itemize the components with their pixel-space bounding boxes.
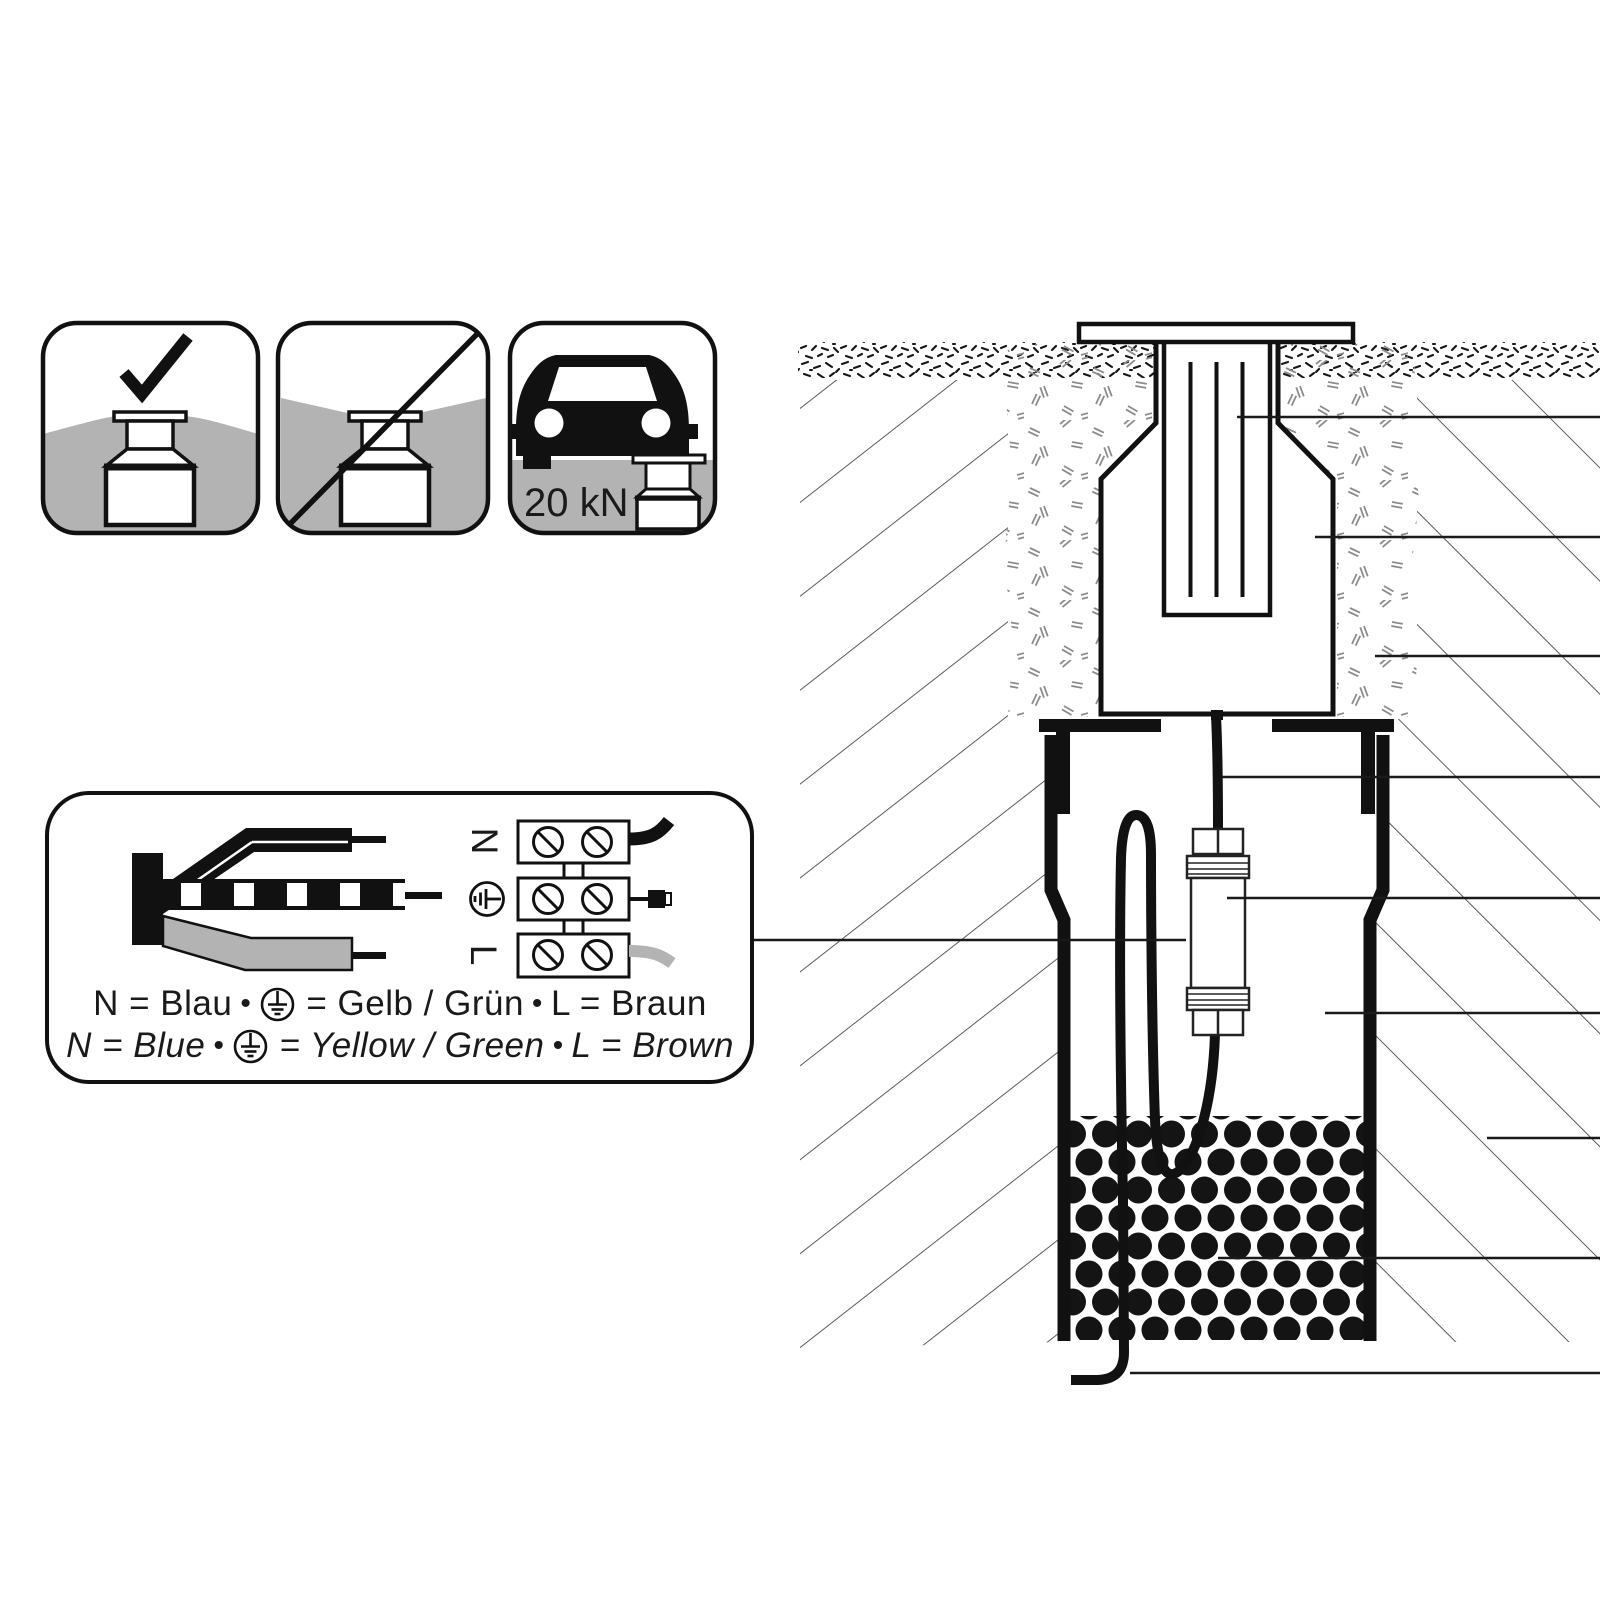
legend-bullet: • [544,1029,571,1063]
ground-cross-section [752,324,1600,1380]
terminal-label-l: L [461,933,505,977]
icon-correct-installation [43,323,258,535]
legend-l-de: L = Braun [551,984,707,1024]
installation-manual-page: 20 kN N L N = Blau • = Gelb / Grün • L =… [0,0,1600,1600]
terminal-label-n: N [462,819,506,863]
gravel-drainage [1069,1116,1366,1340]
terminal-block [518,821,629,977]
cable-connector [1187,829,1249,1035]
cable-sheath [132,853,163,945]
sleeve-bracket-right [1361,732,1375,814]
icon-wrong-installation [278,323,488,535]
legend-earth-en: = Yellow / Green [279,1026,544,1066]
legend-l-en: L = Brown [571,1026,733,1066]
legend-n-en: N = Blue [66,1026,205,1066]
legend-bullet: • [232,987,259,1021]
luminaire-body [341,468,429,525]
load-rating-label: 20 kN [524,481,629,526]
check-icon [124,337,188,394]
cable-gland [1211,710,1223,720]
luminaire-body [106,468,194,525]
cover-plate [1079,324,1353,342]
wire-color-legend-german: N = Blau • = Gelb / Grün • L = Braun [47,984,753,1024]
legend-earth-de: = Gelb / Grün [306,984,524,1024]
car-icon [507,355,698,469]
luminaire-neck [127,421,173,449]
legend-bullet: • [205,1029,232,1063]
legend-n-de: N = Blau [93,984,232,1024]
sleeve-bracket-left [1056,732,1070,814]
diagram-artwork [0,0,1600,1600]
earth-symbol-icon [232,1028,269,1065]
wire-earth-striped [163,879,442,910]
earth-symbol-icon [259,986,296,1023]
legend-bullet: • [524,987,551,1021]
wire-color-legend-english: N = Blue • = Yellow / Green • L = Brown [47,1026,753,1066]
